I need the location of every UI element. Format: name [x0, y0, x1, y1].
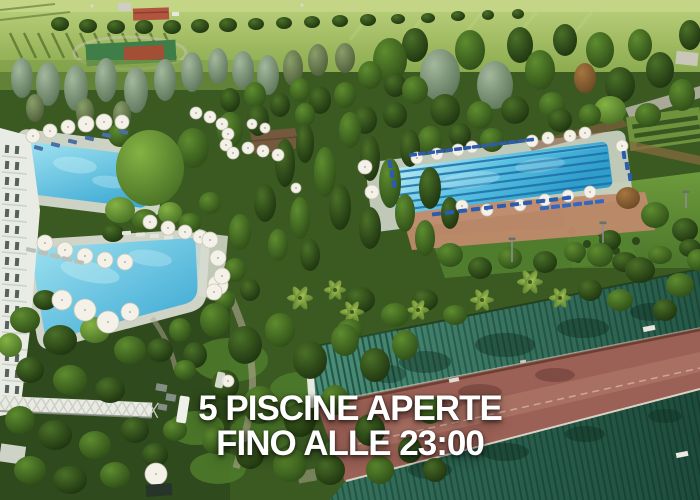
top-right-house [675, 51, 698, 66]
promo-line-2: FINO ALLE 23:00 [0, 426, 700, 461]
promo-line-1: 5 PISCINE APERTE [0, 391, 700, 426]
aerial-resort-photo: 5 PISCINE APERTE FINO ALLE 23:00 [0, 0, 700, 500]
promo-text: 5 PISCINE APERTE FINO ALLE 23:00 [0, 391, 700, 461]
